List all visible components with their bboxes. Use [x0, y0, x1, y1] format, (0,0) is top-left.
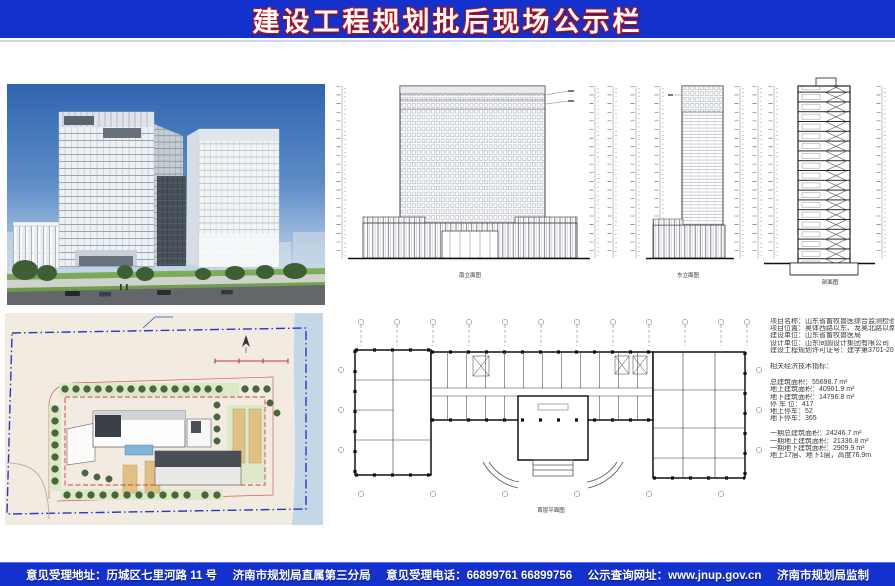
south-elevation-label: 南立面图 — [459, 271, 482, 279]
notice-board: 建设工程规划批后现场公示栏 — [0, 0, 895, 586]
footer-website: 公示查询网址：www.jnup.gov.cn — [588, 567, 762, 583]
construction-unit: 建设单位：山东省畜牧兽医局 — [770, 332, 894, 339]
project-name: 项目名称：山东省畜牧兽医综合监测检验中心 — [770, 318, 894, 325]
entrance-steps — [483, 460, 623, 488]
metrics-title: 相关经济技术指标： — [770, 363, 894, 370]
east-elevation: 东立面图 — [633, 86, 762, 279]
east-elevation-label: 东立面图 — [677, 271, 700, 279]
metric-parking-above: 地上停车：52 — [770, 408, 894, 415]
footer-bar: 意见受理地址：历城区七里河路 11 号 济南市规划局直属第三分局 意见受理电话：… — [0, 562, 895, 586]
metrics-list: 总建筑面积：55698.7 m² 地上建筑面积：40901.9 m² 地下建筑面… — [770, 379, 894, 422]
metric-above-area: 地上建筑面积：40901.9 m² — [770, 386, 894, 393]
header-bar: 建设工程规划批后现场公示栏 — [0, 0, 895, 38]
project-info-block: 项目名称：山东省畜牧兽医综合监测检验中心 项目位置：奥体西路以东、龙奥北路以南 … — [770, 318, 894, 467]
footer-bureau: 济南市规划局直属第三分局 — [233, 567, 371, 583]
project-identity: 项目名称：山东省畜牧兽医综合监测检验中心 项目位置：奥体西路以东、龙奥北路以南 … — [770, 318, 894, 354]
phase-below-area: 一期地下建筑面积：2909.9 m² — [770, 445, 894, 452]
footer-phone: 意见受理电话：66899761 66899756 — [386, 567, 572, 583]
elevation-drawings: 南立面图 东立面图 剖面图 — [330, 73, 892, 291]
phase-metrics-list: 一期总建筑面积：24246.7 m² 一期地上建筑面积：21336.8 m² 一… — [770, 430, 894, 459]
phase-above-area: 一期地上建筑面积：21336.8 m² — [770, 438, 894, 445]
footer-supervisor: 济南市规划局监制 — [777, 567, 869, 583]
phase-total-area: 一期总建筑面积：24246.7 m² — [770, 430, 894, 437]
metric-parking-total: 停 车 位：417 — [770, 401, 894, 408]
floor-plan-label: 首层平面图 — [537, 506, 565, 514]
metric-parking-below: 地下停车：365 — [770, 415, 894, 422]
tower-dark-mid — [157, 176, 186, 266]
project-location: 项目位置：奥体西路以东、龙奥北路以南 — [770, 325, 894, 332]
header-divider — [0, 40, 895, 42]
phase-floors-height: 地上17层、地下1层，高度76.9m — [770, 452, 894, 459]
water-strip — [292, 313, 323, 525]
footer-address: 意见受理地址：历城区七里河路 11 号 — [26, 567, 217, 583]
tower-right — [187, 129, 279, 267]
site-plan-drawing — [5, 313, 323, 525]
floor-plan-drawing: 首层平面图 — [333, 310, 767, 520]
metric-total-area: 总建筑面积：55698.7 m² — [770, 379, 894, 386]
south-elevation: 南立面图 — [339, 86, 617, 279]
section-label: 剖面图 — [822, 278, 839, 286]
building-rendering-photo — [7, 84, 325, 305]
permit-number: 建设工程规划许可证号：建字第3701-2013066号 — [770, 347, 894, 354]
building-section: 剖面图 — [764, 78, 885, 286]
design-unit: 设计单位：山东同圆设计集团有限公司 — [770, 340, 894, 347]
entrance-canopy — [75, 250, 137, 266]
metric-below-area: 地下建筑面积：14796.8 m² — [770, 394, 894, 401]
page-title: 建设工程规划批后现场公示栏 — [253, 0, 643, 39]
